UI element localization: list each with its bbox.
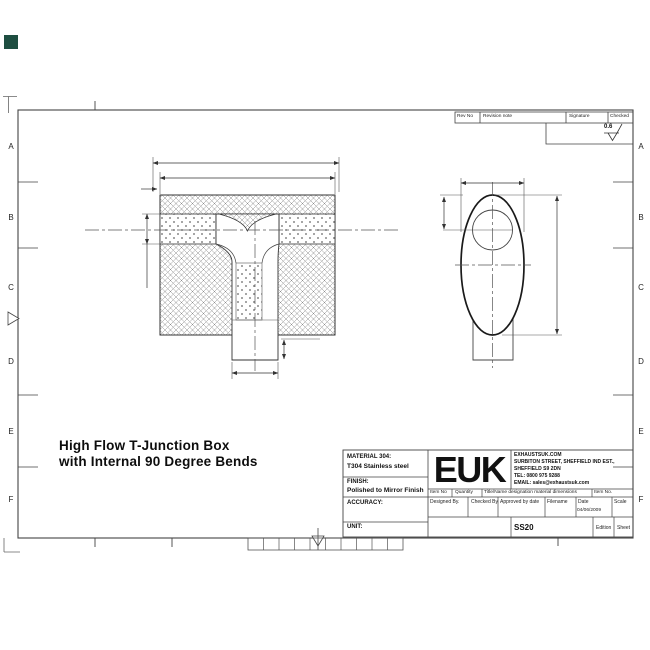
border-row-label-left-c: C [6, 283, 16, 292]
revision-col-note: Revision note [483, 114, 512, 119]
material-value: T304 Stainless steel [347, 463, 409, 470]
border-row-label-right-d: D [636, 357, 646, 366]
border-row-label-right-e: E [636, 427, 646, 436]
company-city: SHEFFIELD S9 2DN [514, 466, 632, 473]
corner-accent-square [4, 35, 18, 49]
sheet-label: Sheet [617, 525, 630, 531]
linework-canvas [0, 0, 650, 650]
company-email: EMAIL: sales@exhaustsuk.com [514, 480, 632, 487]
date-label: Date [578, 499, 589, 505]
revision-col-checked: Checked [610, 114, 629, 119]
quantity-label: Quantity [455, 490, 473, 495]
border-row-label-right-c: C [636, 283, 646, 292]
title-name-label: Title/Name designation material dimensio… [484, 490, 577, 495]
border-row-label-left-a: A [6, 142, 16, 151]
designed-by-label: Designed By. [430, 499, 459, 505]
surface-finish-value: 0.6 [604, 124, 612, 130]
finish-label: FINISH: [347, 479, 369, 485]
item-no-label: Item No [430, 490, 447, 495]
scale-label: Scale [614, 499, 627, 505]
border-row-label-right-a: A [636, 142, 646, 151]
item-no2-label: Item No. [594, 490, 612, 495]
edition-label: Edition [596, 525, 611, 531]
drawing-title-line2: with Internal 90 Degree Bends [59, 454, 258, 470]
date-value: 04/06/2009 [577, 508, 601, 513]
company-phone: TEL: 0800 975 9288 [514, 473, 632, 480]
part-number: SS20 [514, 523, 534, 532]
border-row-label-left-d: D [6, 357, 16, 366]
company-street: SURBITON STREET, SHEFFIELD IND EST., [514, 459, 632, 466]
material-label: MATERIAL 304: [347, 454, 391, 460]
company-info: EXHAUSTSUK.COM SURBITON STREET, SHEFFIEL… [514, 452, 632, 487]
revision-col-signature: Signature [569, 114, 590, 119]
drawing-sheet: A B C D E F A B C D E F Rev No Revision … [0, 0, 650, 650]
approved-label: Approved by date [500, 499, 539, 505]
checked-by-label: Checked By [471, 499, 498, 505]
revision-col-rev-no: Rev No [457, 114, 473, 119]
finish-value: Polished to Mirror Finish [347, 487, 424, 494]
border-row-label-right-b: B [636, 213, 646, 222]
border-row-label-left-b: B [6, 213, 16, 222]
drawing-title-line1: High Flow T-Junction Box [59, 438, 258, 454]
unit-label: UNIT: [347, 524, 362, 530]
company-website: EXHAUSTSUK.COM [514, 452, 632, 459]
border-row-label-left-f: F [6, 495, 16, 504]
accuracy-label: ACCURACY: [347, 500, 383, 506]
border-row-label-left-e: E [6, 427, 16, 436]
company-logo: EUK [428, 451, 511, 489]
drawing-title: High Flow T-Junction Box with Internal 9… [59, 438, 258, 469]
border-row-label-right-f: F [636, 495, 646, 504]
filename-label: Filename [547, 499, 568, 505]
